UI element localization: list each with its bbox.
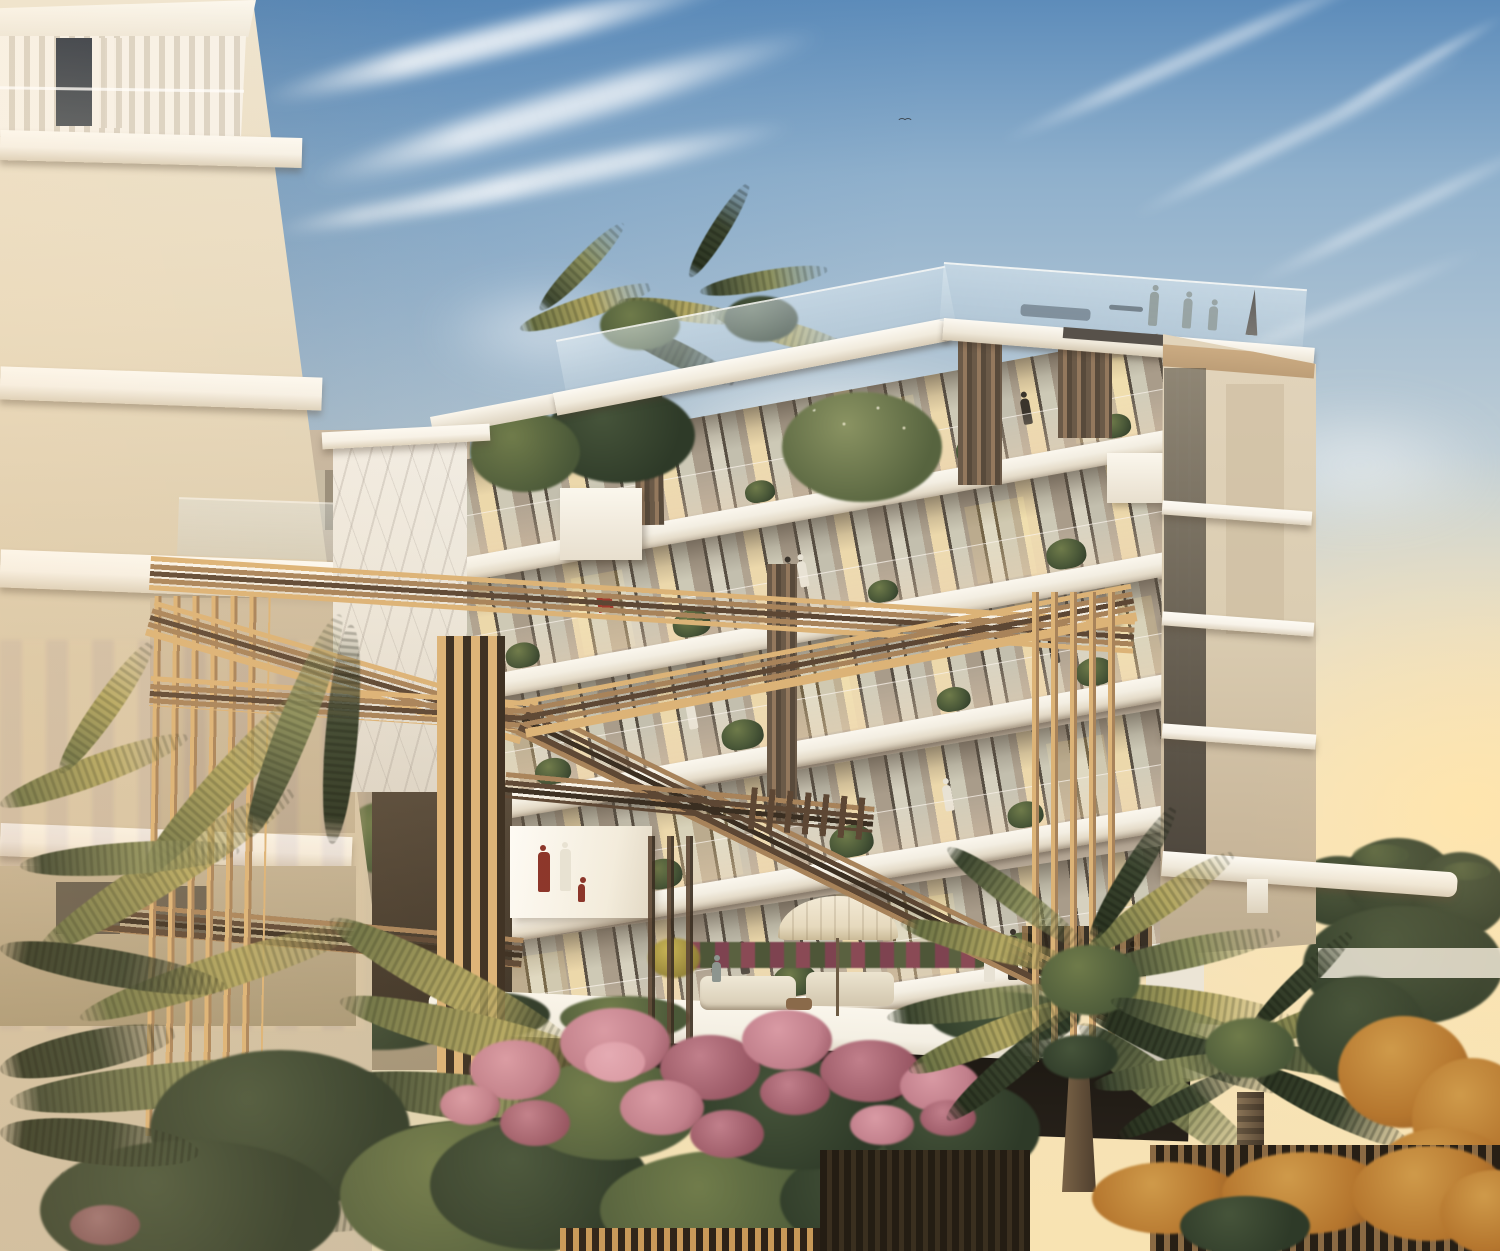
rooftop-person [1182,298,1193,329]
rust-grass-shadow [1180,1196,1310,1251]
rooftop-person [1208,306,1219,331]
garden-fence-lit [560,1228,850,1251]
bird-silhouette [897,118,912,126]
left-tower-balcony-glass [177,497,344,561]
pink-bloom [500,1100,570,1146]
rooftop-table [1109,305,1143,313]
left-tower-loggia-window [56,38,92,126]
lounge-sofa [806,972,894,1006]
dark-screen [820,1150,1030,1251]
terrace-person [538,852,550,892]
planter-grasses [660,942,990,968]
facade-louver-fins [958,340,1002,485]
blade-support-box [1247,879,1268,913]
sunlit-feature-wall [510,826,652,918]
pink-bloom-bright [585,1042,645,1082]
pink-bloom [850,1105,914,1145]
pink-bloom [760,1070,830,1115]
seated-person [712,962,721,982]
scene-architectural-render [0,0,1500,1251]
palm-skirt [1042,1035,1118,1079]
rooftop-closed-umbrella [1245,289,1260,336]
pink-bloom [690,1110,764,1158]
coffee-table [786,998,812,1010]
rooftop-person [1148,292,1160,327]
lower-slab-fragment [1318,948,1500,978]
balcony-box [560,488,642,560]
terrace-child [578,884,585,902]
terrace-person [560,849,571,891]
pink-bloom [742,1010,832,1070]
rooftop-lounger [1020,304,1091,321]
umbrella-pole [836,938,839,1016]
curtain-fold [92,38,122,128]
palm-crown-core [1205,1018,1295,1078]
pink-bloom [70,1205,140,1245]
white-flower-speckles [800,398,930,458]
pink-bloom [440,1085,500,1125]
